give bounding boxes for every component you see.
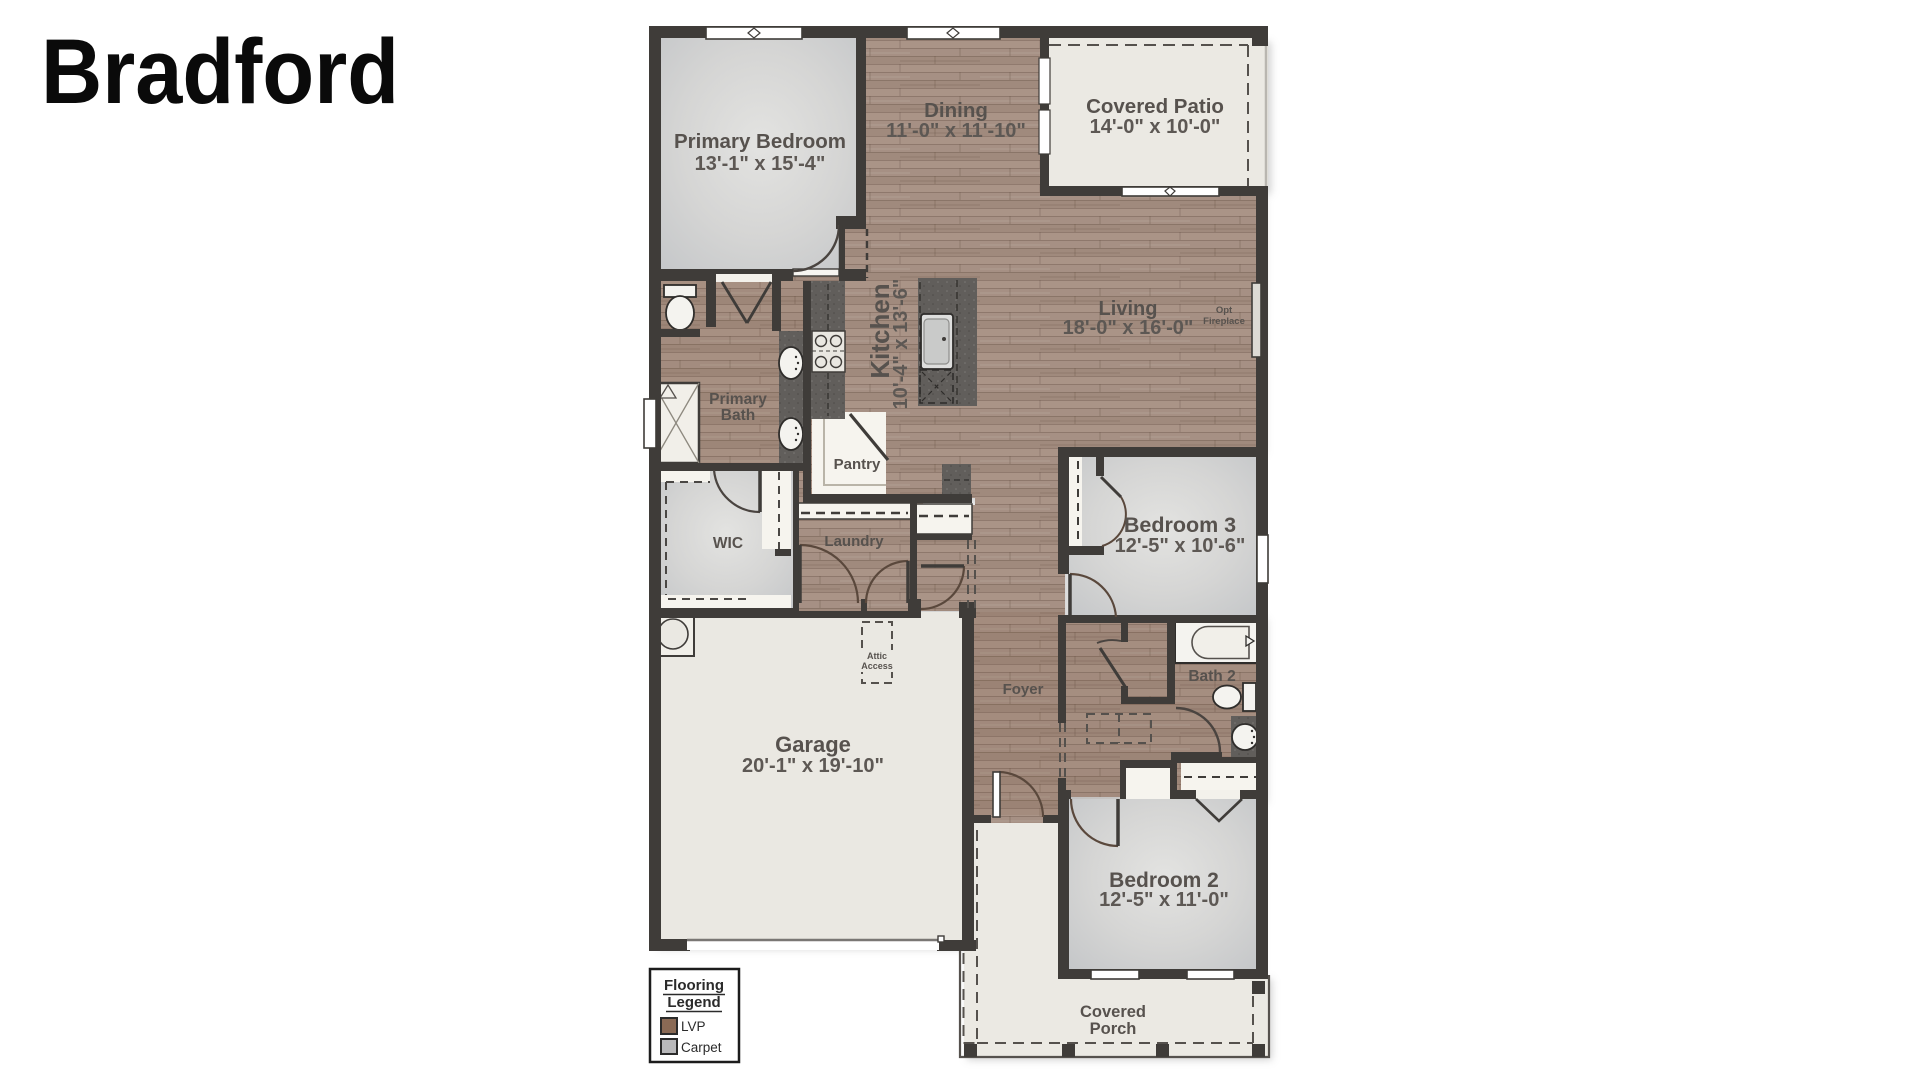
svg-text:Access: Access — [861, 661, 893, 671]
svg-text:Primary: Primary — [709, 391, 767, 408]
svg-text:Attic: Attic — [867, 651, 887, 661]
svg-text:Foyer: Foyer — [1003, 681, 1044, 698]
svg-text:10'-4" x 13'-6": 10'-4" x 13'-6" — [890, 279, 912, 410]
svg-text:Fireplace: Fireplace — [1203, 316, 1245, 327]
svg-text:14'-0" x 10'-0": 14'-0" x 10'-0" — [1090, 116, 1221, 138]
svg-text:Bath 2: Bath 2 — [1188, 668, 1235, 685]
svg-text:12'-5" x 11'-0": 12'-5" x 11'-0" — [1099, 889, 1229, 911]
svg-text:Pantry: Pantry — [834, 456, 881, 473]
svg-text:20'-1" x 19'-10": 20'-1" x 19'-10" — [742, 755, 884, 777]
svg-text:Covered Patio: Covered Patio — [1086, 95, 1224, 118]
svg-text:11'-0" x 11'-10": 11'-0" x 11'-10" — [886, 120, 1026, 142]
svg-text:13'-1" x 15'-4": 13'-1" x 15'-4" — [695, 153, 826, 175]
svg-text:Covered: Covered — [1080, 1003, 1146, 1021]
svg-text:18'-0" x 16'-0": 18'-0" x 16'-0" — [1063, 317, 1194, 339]
svg-text:Dining: Dining — [924, 99, 988, 122]
svg-text:Bath: Bath — [721, 407, 755, 424]
svg-text:Bedroom 3: Bedroom 3 — [1124, 513, 1236, 537]
svg-text:LVP: LVP — [681, 1019, 706, 1034]
svg-text:Opt: Opt — [1216, 305, 1233, 316]
svg-text:Garage: Garage — [775, 732, 851, 757]
svg-text:Laundry: Laundry — [824, 533, 884, 550]
svg-text:Primary Bedroom: Primary Bedroom — [674, 130, 846, 153]
svg-text:WIC: WIC — [713, 535, 743, 552]
svg-text:Legend: Legend — [667, 994, 720, 1011]
svg-text:Carpet: Carpet — [681, 1040, 722, 1055]
svg-text:Bradford: Bradford — [41, 21, 399, 123]
svg-text:Flooring: Flooring — [664, 977, 724, 994]
svg-text:12'-5" x 10'-6": 12'-5" x 10'-6" — [1115, 535, 1246, 557]
svg-text:Porch: Porch — [1090, 1020, 1137, 1038]
